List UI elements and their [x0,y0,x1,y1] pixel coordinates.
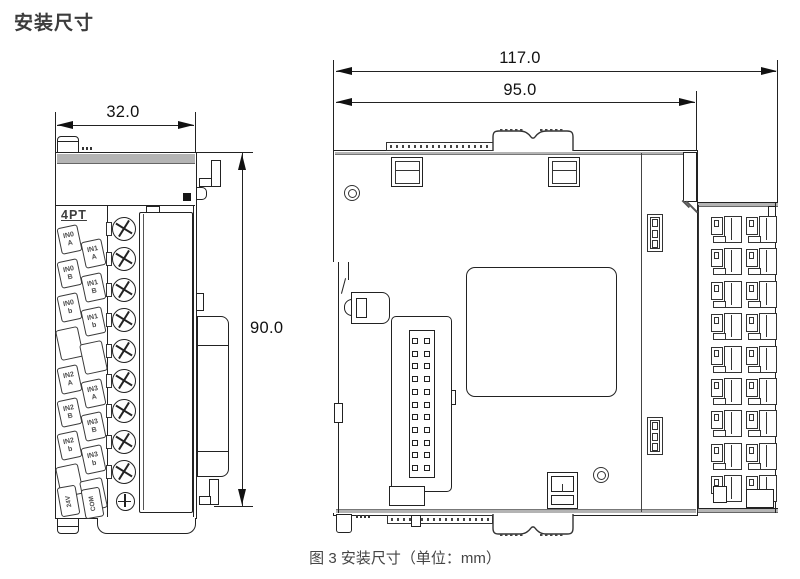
clamp-hook-inner [714,252,719,259]
pin-icon [424,351,430,357]
screw-icon [112,339,136,363]
clamp-hook-inner [749,447,754,454]
clamp-hook-inner [714,350,719,357]
screw-icon [112,278,136,302]
clamp-body [724,248,742,275]
clamp-foot [713,463,726,470]
front-height-dim-label: 90.0 [250,319,302,338]
clamp-line [766,315,767,337]
din-latch-slot [356,298,367,318]
mounting-slot-divider [552,170,576,171]
module-type-label: 4PT [61,208,87,222]
clamp-foot [713,236,726,243]
arrowhead-up-icon [238,154,246,170]
case-seam-line [641,153,642,512]
terminal-section-left-edge [698,205,699,509]
dim-extension-line [777,60,778,203]
dim-extension-line [214,506,253,507]
mounting-hole-bottom [593,467,609,483]
clamp-body [724,443,742,470]
clamp-hook-inner [714,447,719,454]
clamp-line [731,315,732,337]
small-component-line [562,484,563,492]
left-edge-hook [334,403,343,423]
arrowhead-left-icon [336,98,352,106]
side-bump [196,187,207,200]
side-connector-housing [197,316,229,477]
screw-icon [112,308,136,332]
clamp-hook-inner [749,479,754,486]
arrowhead-right-icon [178,121,194,129]
clamp-body [724,410,742,437]
pin-icon [412,389,418,395]
pin-icon [424,338,430,344]
flat-screw-icon [116,492,135,511]
small-connector-cell [652,443,658,451]
clamp-hook-inner [714,414,719,421]
clamp-hook-inner [749,350,754,357]
clamp-line [766,218,767,240]
cover-top-tab [146,206,160,213]
clip-detail-line [58,141,78,142]
clamp-line [766,380,767,402]
clamp-foot [748,366,761,373]
din-clip-top [57,136,79,153]
small-connector-cell [652,219,658,227]
clamp-foot [713,366,726,373]
screw-icon [112,460,136,484]
clamp-foot [748,301,761,308]
terminal-section-top-edge [698,202,778,207]
clamp-foot [748,430,761,437]
terminal-end-block [746,489,774,508]
dim-extension-line [333,60,334,151]
connector-nub [451,390,456,405]
clamp-foot [713,430,726,437]
clamp-body [724,281,742,308]
mounting-slot-divider [395,170,419,171]
hook-top [211,160,221,187]
clamp-foot [713,301,726,308]
terminal-end-foot [713,486,727,503]
small-connector-cell [652,422,658,430]
pin-icon [424,402,430,408]
edge-ticks [356,515,370,518]
housing-line [198,345,228,346]
pin-icon [424,389,430,395]
clamp-body [759,410,777,437]
spring-clip-bottom [492,514,574,536]
clamp-line [731,380,732,402]
clamp-line [731,412,732,434]
clamp-line [766,445,767,467]
clamp-hook-inner [714,317,719,324]
connector-foot [389,486,425,506]
cover-edge-line [143,214,144,510]
pin-icon [412,452,418,458]
pin-icon [412,338,418,344]
module-top-band [57,154,195,164]
arrowhead-down-icon [238,489,246,505]
terminal-cover [139,212,193,513]
clamp-hook-inner [714,382,719,389]
panel-divider [56,205,195,206]
side-total-width-dim-label: 117.0 [460,49,580,68]
clamp-body [724,313,742,340]
clamp-hook-inner [749,252,754,259]
hook-top-base [199,178,212,187]
screw-icon [112,430,136,454]
pin-icon [424,465,430,471]
edge-ticks [82,147,92,150]
clamp-body [759,443,777,470]
arrowhead-left-icon [336,67,352,75]
vent-strip-top [386,142,494,151]
small-component-detail [551,495,574,505]
front-width-dim-label: 32.0 [88,103,158,122]
label-panel [466,267,617,397]
clamp-body [759,216,777,243]
small-connector-cell [652,433,658,441]
clamp-line [766,348,767,370]
right-edge-tab [683,152,697,202]
clamp-body [724,346,742,373]
clamp-foot [748,463,761,470]
clamp-hook-inner [749,317,754,324]
hook-bottom-base [199,496,211,505]
clamp-line [766,283,767,305]
clamp-hook-inner [749,382,754,389]
latch-claw [348,262,349,280]
spring-clip-top [492,129,574,151]
clamp-line [731,250,732,272]
clamp-foot [748,333,761,340]
clamp-line [731,445,732,467]
arrowhead-right-icon [679,98,695,106]
clamp-hook-inner [749,414,754,421]
arrowhead-right-icon [761,67,777,75]
clamp-body [759,313,777,340]
small-connector-cell [652,230,658,238]
pin-icon [424,440,430,446]
small-connector-cell [652,240,658,248]
clamp-body [759,378,777,405]
mounting-hole-top [344,185,360,201]
pin-icon [412,440,418,446]
clamp-line [731,283,732,305]
housing-line [198,451,228,452]
mounting-slot-inner [552,161,577,184]
pin-icon [424,414,430,420]
page-title: 安装尺寸 [14,8,94,35]
side-left-lower-edge [338,262,339,513]
clip-detail-line [58,526,78,527]
clamp-line [731,477,732,499]
clamp-foot [713,333,726,340]
clamp-foot [748,236,761,243]
dim-line [242,153,243,506]
screw-icon [112,369,136,393]
figure-caption: 图 3 安装尺寸（单位：mm） [240,547,570,568]
pin-icon [412,402,418,408]
pin-icon [424,452,430,458]
pin-icon [412,363,418,369]
clamp-line [731,348,732,370]
clamp-hook-inner [749,220,754,227]
dim-extension-line [696,91,697,153]
clamp-hook-inner [749,285,754,292]
pin-icon [412,351,418,357]
clamp-body [724,216,742,243]
bottom-tray [97,518,196,534]
clamp-line [766,412,767,434]
indicator-dot [183,193,191,201]
clamp-hook-inner [714,285,719,292]
pin-icon [412,414,418,420]
pin-icon [412,465,418,471]
clamp-foot [748,268,761,275]
clamp-body [759,346,777,373]
clamp-foot [713,398,726,405]
arrowhead-left-icon [57,121,73,129]
side-body-width-dim-label: 95.0 [460,81,580,100]
clamp-body [759,248,777,275]
clamp-line [731,218,732,240]
clamp-line [766,250,767,272]
pin-icon [424,376,430,382]
side-tab [196,293,204,311]
pin-icon [424,427,430,433]
mounting-slot-inner [395,161,420,184]
clamp-hook-inner [714,220,719,227]
clamp-foot [713,268,726,275]
edge-mask [331,262,336,513]
pin-icon [412,427,418,433]
pin-icon [424,363,430,369]
bottom-left-block [336,514,352,533]
pin-icon [412,376,418,382]
bottom-tab [411,515,421,527]
dim-extension-line [197,152,253,153]
dim-line [57,125,194,126]
clamp-body [759,281,777,308]
clamp-foot [748,398,761,405]
dim-line [336,102,695,103]
terminal-section-bottom-edge [698,508,778,513]
screw-icon [112,217,136,241]
vent-strip-bottom [387,515,493,524]
dim-extension-line [55,112,56,152]
dim-line [336,71,776,72]
dim-extension-line [195,112,196,152]
clamp-body [724,378,742,405]
